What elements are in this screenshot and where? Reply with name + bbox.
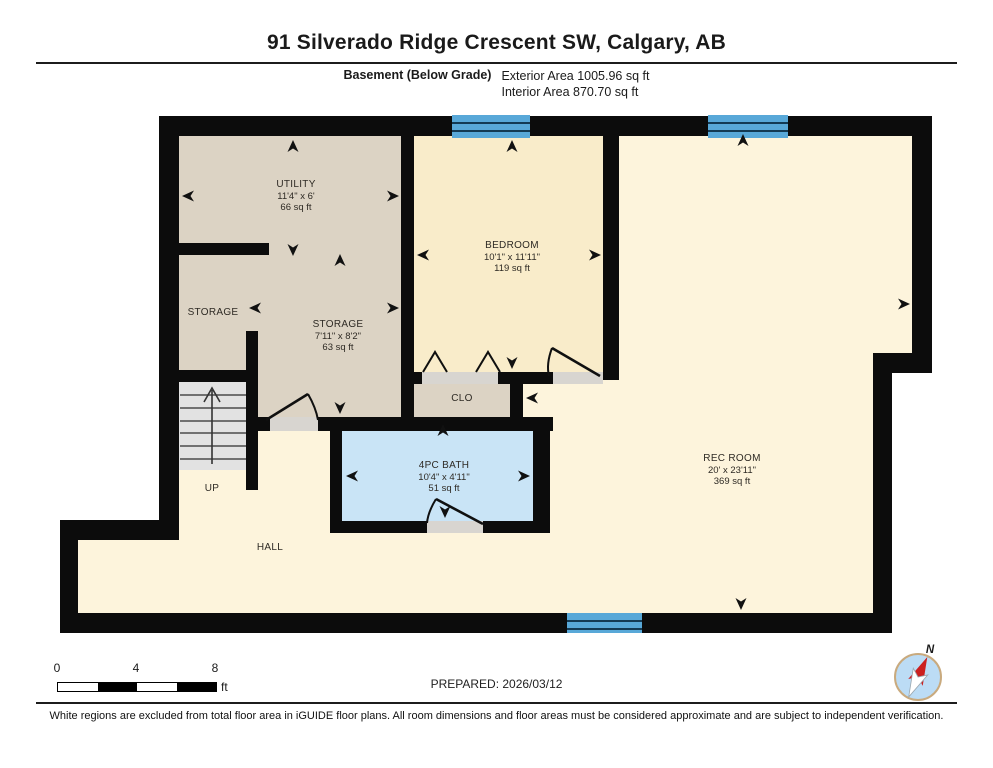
wall-bath-bottom-left [330, 521, 427, 533]
label-storage-small: STORAGE [188, 307, 239, 319]
compass-north-label: N [926, 644, 934, 656]
area-info: Exterior Area 1005.96 sq ft Interior Are… [501, 68, 649, 101]
door-sill-bifold [422, 372, 498, 384]
label-utility: UTILITY 11'4" x 6' 66 sq ft [276, 179, 315, 213]
wall-bedroom-bottom-mid [498, 372, 553, 384]
window-bedroom [452, 115, 530, 138]
label-rec-room: REC ROOM 20' x 23'11" 369 sq ft [703, 453, 760, 487]
wall-exterior-left [159, 116, 179, 540]
wall-bath-bottom-right [483, 521, 550, 533]
exterior-area: Exterior Area 1005.96 sq ft [501, 68, 649, 84]
page-title: 91 Silverado Ridge Crescent SW, Calgary,… [0, 31, 993, 55]
door-sill-bath [427, 521, 483, 533]
interior-area: Interior Area 870.70 sq ft [501, 84, 649, 100]
wall-exterior-right-lower [873, 353, 892, 633]
label-storage: STORAGE 7'11" x 8'2" 63 sq ft [313, 319, 364, 353]
door-sill-storage [270, 417, 318, 431]
floorplan-page: 91 Silverado Ridge Crescent SW, Calgary,… [0, 0, 993, 768]
label-up: UP [205, 483, 220, 495]
wall-utility-storage [179, 243, 269, 255]
door-sill-bedroom [553, 372, 603, 384]
wall-storage-door-stub [255, 417, 270, 431]
wall-bedroom-left [401, 135, 414, 417]
wall-bedroom-right [603, 135, 619, 380]
prepared-date: PREPARED: 2026/03/12 [0, 677, 993, 691]
wall-bath-right [533, 417, 550, 533]
wall-bedroom-bottom-stub [414, 372, 422, 384]
label-bedroom: BEDROOM 10'1" x 11'11" 119 sq ft [484, 240, 540, 274]
storage-fill-lower [258, 370, 414, 417]
label-hall: HALL [257, 542, 283, 554]
floor-info: Basement (Below Grade) Exterior Area 100… [0, 68, 993, 101]
wall-closet-right [510, 380, 523, 420]
floor-label: Basement (Below Grade) [344, 68, 492, 82]
rec-room-fill-upper [619, 135, 912, 373]
disclaimer-text: White regions are excluded from total fl… [0, 710, 993, 722]
wall-bath-left [330, 417, 342, 533]
label-bath: 4PC BATH 10'4" x 4'11" 51 sq ft [418, 460, 469, 494]
scale-start: 0 [54, 661, 61, 675]
scale-mid: 4 [133, 661, 140, 675]
footer-divider [36, 702, 957, 704]
window-rec-room [708, 115, 788, 138]
rec-room-fill-lower [550, 373, 873, 613]
wall-exterior-right-upper [912, 116, 932, 373]
window-rec-room-south [567, 613, 642, 633]
scale-end: 8 [212, 661, 219, 675]
wall-exterior-bottom [60, 613, 892, 633]
label-closet: CLO [451, 393, 472, 405]
wall-exterior-top [159, 116, 932, 136]
header-divider [36, 62, 957, 64]
stairs-area [179, 382, 246, 470]
